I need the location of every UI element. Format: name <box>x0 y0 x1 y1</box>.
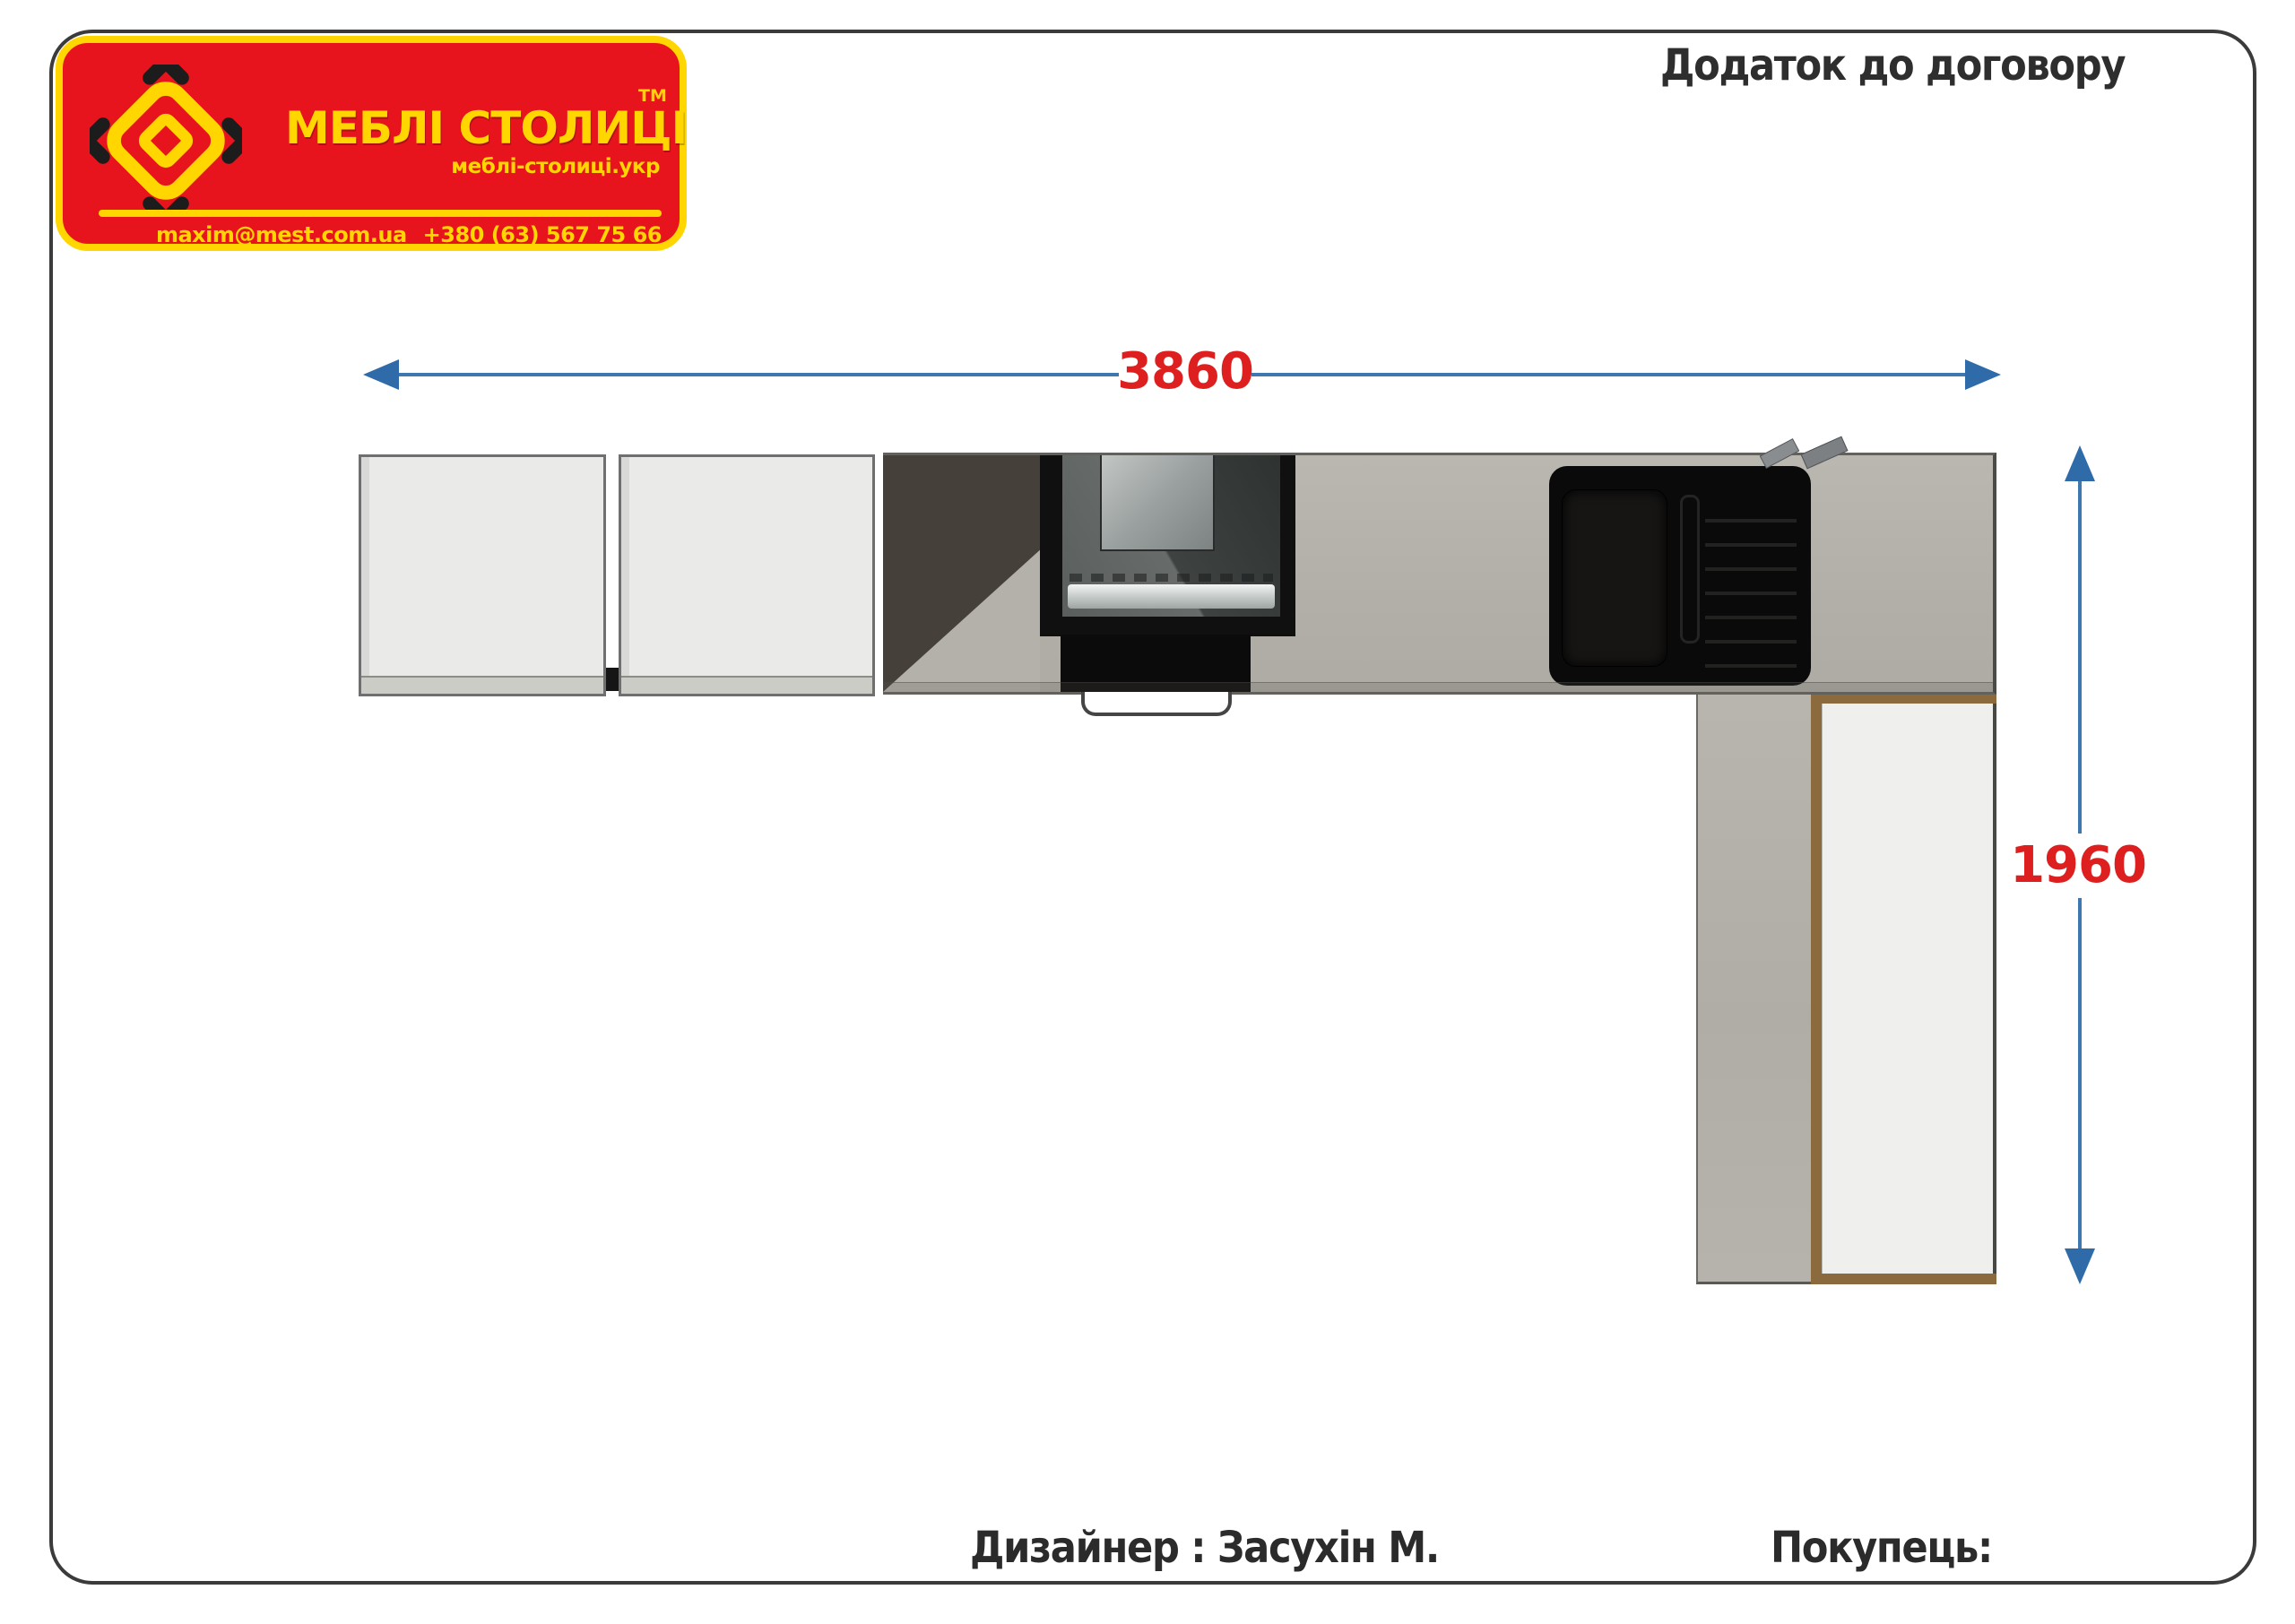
arrow-left-icon <box>363 359 399 390</box>
counter-shadow-area <box>883 455 1040 692</box>
sink-drainer-grooves <box>1705 498 1797 669</box>
tall-cabinet-panel <box>1822 704 1996 1274</box>
sink-overflow-slot <box>1680 495 1700 644</box>
oven-handle <box>1081 692 1232 716</box>
company-logo-badge: МЕБЛІ СТОЛИЦІ ТМ меблі-столиці.укр maxim… <box>56 36 687 251</box>
panel-edge-banding <box>1811 695 1822 1284</box>
panel-edge-banding <box>1811 695 1996 704</box>
cooktop-appliance <box>1040 455 1295 636</box>
countertop <box>883 453 1996 695</box>
page-title: Додаток до договору <box>1660 41 2125 91</box>
cabinet-door-left <box>359 454 606 696</box>
width-dimension-value: 3860 <box>1087 347 1284 397</box>
width-dimension-line <box>1251 373 1988 376</box>
arrow-up-icon <box>2065 445 2095 481</box>
contact-phone: +380 (63) 567 75 66 <box>423 222 662 247</box>
height-dimension-line <box>2078 450 2082 834</box>
panel-edge-banding <box>1811 1274 1996 1284</box>
contract-appendix-page: МЕБЛІ СТОЛИЦІ ТМ меблі-столиці.укр maxim… <box>0 0 2295 1624</box>
trademark-mark: ТМ <box>638 88 667 105</box>
counter-return-concrete <box>1696 695 1811 1284</box>
arrow-right-icon <box>1965 359 2001 390</box>
shadow-diagonal <box>883 455 1040 692</box>
arrow-down-icon <box>2065 1248 2095 1284</box>
height-dimension-line <box>2078 898 2082 1280</box>
width-dimension-line <box>375 373 1119 376</box>
contact-line: maxim@mest.com.ua+380 (63) 567 75 66 <box>156 224 662 246</box>
brand-name: МЕБЛІ СТОЛИЦІ <box>285 106 687 151</box>
appliance-trim-bar <box>1068 584 1275 609</box>
designer-label: Дизайнер : Засухін М. <box>970 1524 1439 1573</box>
appliance-control-panel <box>1061 635 1251 692</box>
appliance-glass <box>1062 455 1280 617</box>
cabinet-hinge <box>606 668 619 691</box>
contact-email: maxim@mest.com.ua <box>156 222 407 247</box>
appliance-vents <box>1070 574 1273 582</box>
appliance-window <box>1100 455 1215 551</box>
diamond-logo-icon <box>90 65 242 217</box>
cabinet-door-right <box>619 454 875 696</box>
buyer-label: Покупець: <box>1771 1524 1992 1573</box>
sink-basin <box>1562 489 1667 667</box>
brand-website: меблі-столиці.укр <box>451 157 660 177</box>
kitchen-sink <box>1549 466 1811 686</box>
badge-divider <box>99 210 662 217</box>
height-dimension-value: 1960 <box>1988 841 2168 891</box>
